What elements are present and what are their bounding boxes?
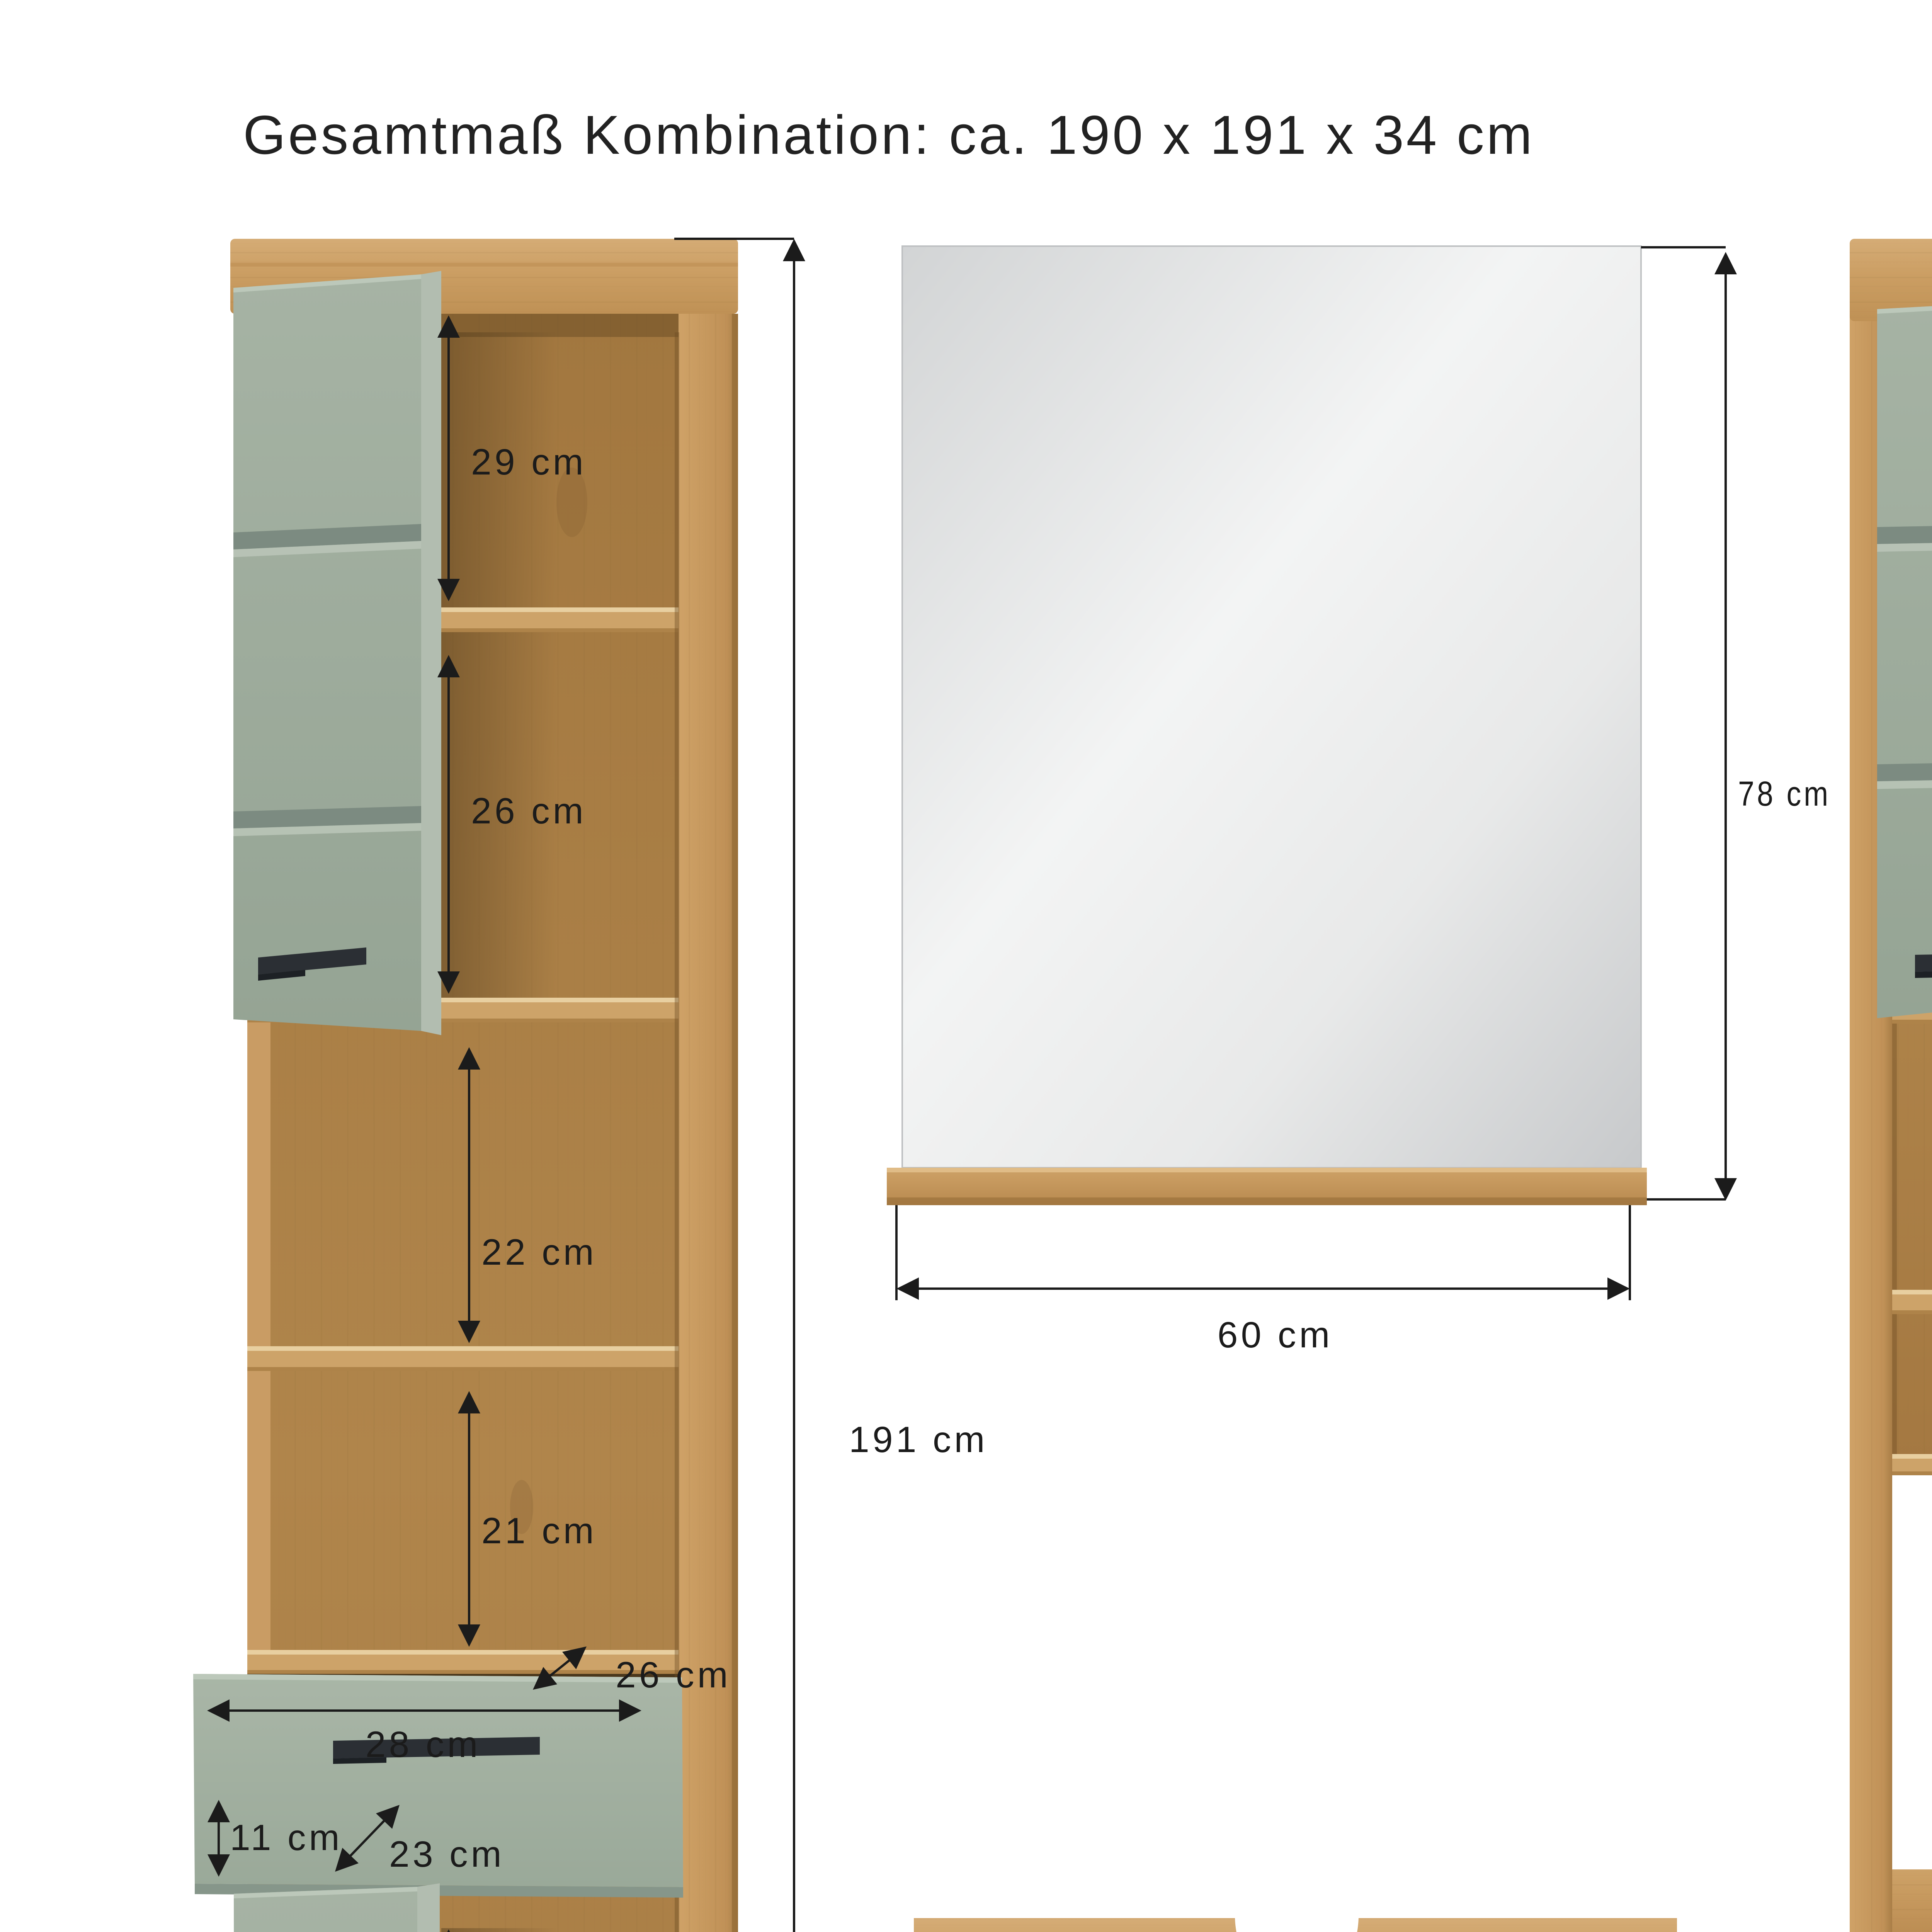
svg-text:26 cm: 26 cm: [616, 1655, 731, 1696]
svg-text:26 cm: 26 cm: [471, 791, 587, 832]
svg-text:28 cm: 28 cm: [366, 1724, 481, 1765]
svg-text:Gesamtmaß Kombination: ca. 190: Gesamtmaß Kombination: ca. 190 x 191 x 3…: [243, 104, 1534, 166]
svg-text:21 cm: 21 cm: [481, 1510, 597, 1551]
svg-text:29 cm: 29 cm: [471, 442, 587, 483]
svg-text:60 cm: 60 cm: [1218, 1315, 1333, 1355]
svg-text:78 cm: 78 cm: [1738, 775, 1831, 813]
svg-text:11 cm: 11 cm: [230, 1817, 343, 1858]
svg-text:23 cm: 23 cm: [389, 1834, 505, 1875]
svg-text:191 cm: 191 cm: [849, 1419, 988, 1460]
svg-text:22 cm: 22 cm: [481, 1232, 597, 1273]
